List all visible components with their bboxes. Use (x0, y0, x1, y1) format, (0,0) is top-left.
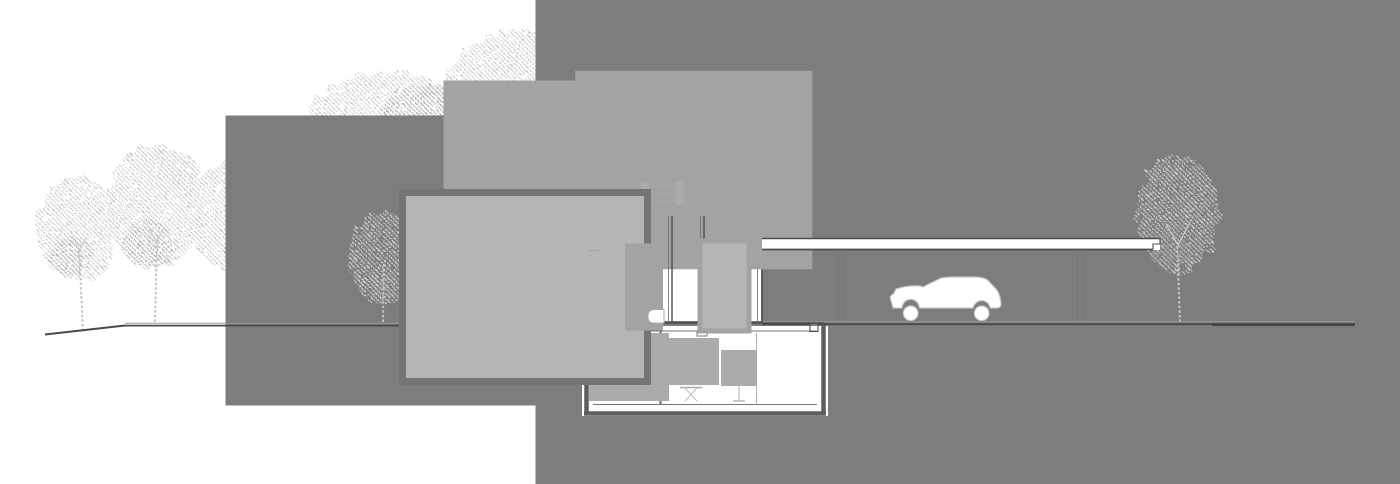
canopy-mask (762, 238, 1160, 250)
floor-lamp-shade (730, 359, 748, 377)
car-wheel (974, 306, 989, 321)
house (461, 84, 764, 324)
wall-picture (677, 352, 705, 371)
courtyard-tree-crown (361, 272, 395, 304)
car-wheel (903, 306, 918, 321)
ground-slope-left (45, 326, 125, 335)
toilet (648, 310, 664, 324)
tree-crown (48, 236, 92, 276)
tree-crown (146, 150, 198, 194)
architectural-section-drawing (0, 0, 1400, 484)
drawing-line (714, 255, 736, 318)
section-drawing-canvas (0, 0, 1400, 484)
bed-post (678, 199, 682, 203)
drawing-line (466, 256, 585, 319)
bed-post (678, 184, 682, 188)
bed-post (678, 192, 682, 196)
tv-upper (539, 163, 581, 191)
shelf-unit (747, 140, 753, 208)
bed-post (643, 184, 647, 188)
